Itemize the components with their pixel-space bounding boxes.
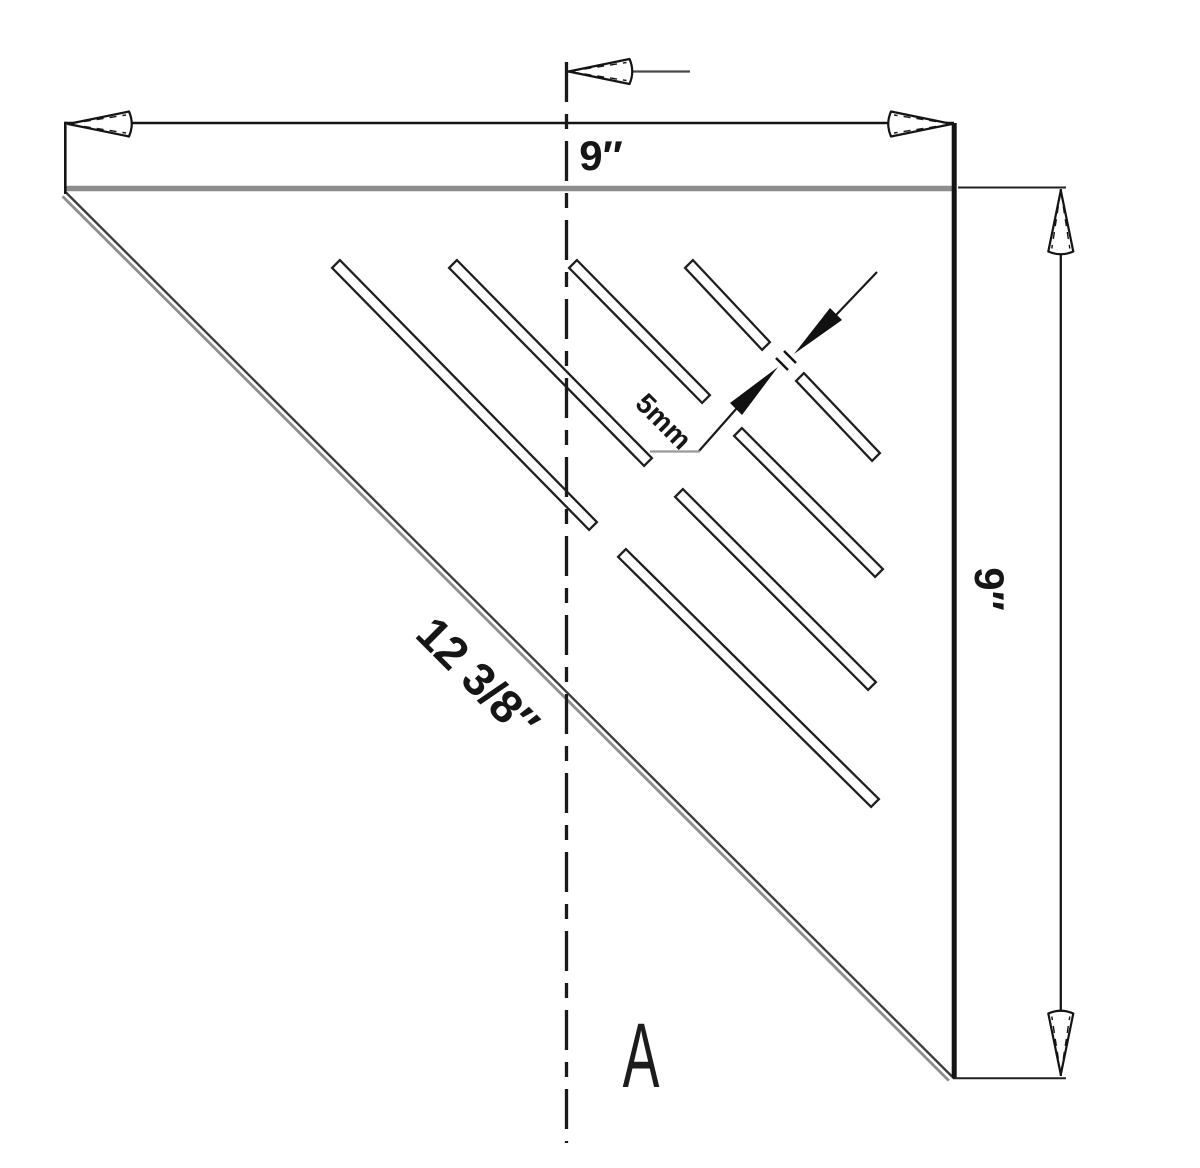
shelf-outline (63, 122, 955, 1081)
technical-drawing-canvas: 9″ 9″ 12 3/8″ 5mm A (0, 0, 1200, 1168)
right-height-dimension: 9″ (953, 188, 1073, 1079)
hypotenuse-dimension-label: 12 3/8″ (407, 607, 550, 750)
centerline-callout (568, 59, 690, 84)
slot-width-tick (784, 351, 796, 363)
dimension-arrowhead-up-icon (1048, 191, 1073, 255)
drainage-slot (332, 260, 597, 530)
drainage-slot (449, 260, 652, 466)
drainage-slot (569, 260, 710, 403)
right-height-dimension-label: 9″ (966, 567, 1013, 610)
drawing-page: 9″ 9″ 12 3/8″ 5mm A (0, 0, 1200, 1168)
lower-leader-line (699, 408, 737, 451)
hypotenuse-dimension: 12 3/8″ (407, 607, 550, 750)
dimension-arrowhead-left-icon (68, 112, 132, 137)
top-width-dimension-label: 9″ (579, 132, 622, 179)
top-width-dimension: 9″ (68, 112, 952, 180)
drainage-slot (685, 260, 770, 350)
filled-arrowhead-lower-icon (730, 367, 778, 415)
upper-leader-line (836, 272, 877, 315)
section-marker-label: A (623, 1005, 660, 1108)
dimension-arrowhead-right-icon (888, 112, 952, 137)
dimension-arrowhead-down-icon (1048, 1011, 1073, 1075)
centerline-callout-arrowhead-icon (569, 59, 633, 84)
drainage-slot (675, 489, 876, 690)
section-marker: A (623, 1005, 660, 1108)
drainage-slot (796, 373, 880, 461)
slot-width-tick (776, 358, 788, 370)
drainage-slot (618, 549, 879, 807)
filled-arrowhead-upper-icon (794, 308, 842, 354)
drainage-slots (332, 260, 883, 807)
